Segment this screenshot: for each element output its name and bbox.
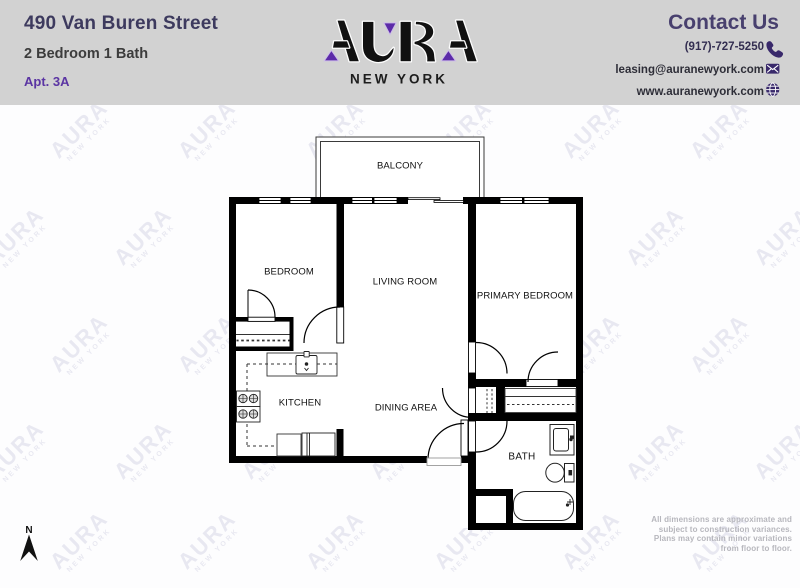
svg-text:BEDROOM: BEDROOM [264,267,314,278]
svg-text:BALCONY: BALCONY [377,161,424,172]
svg-text:NEW YORK: NEW YORK [350,72,448,87]
svg-text:N: N [25,525,32,536]
svg-text:KITCHEN: KITCHEN [279,398,321,409]
svg-text:LIVING ROOM: LIVING ROOM [373,277,437,288]
svg-text:PRIMARY BEDROOM: PRIMARY BEDROOM [477,291,573,302]
svg-text:DINING AREA: DINING AREA [375,403,438,414]
svg-text:BATH: BATH [508,452,535,463]
